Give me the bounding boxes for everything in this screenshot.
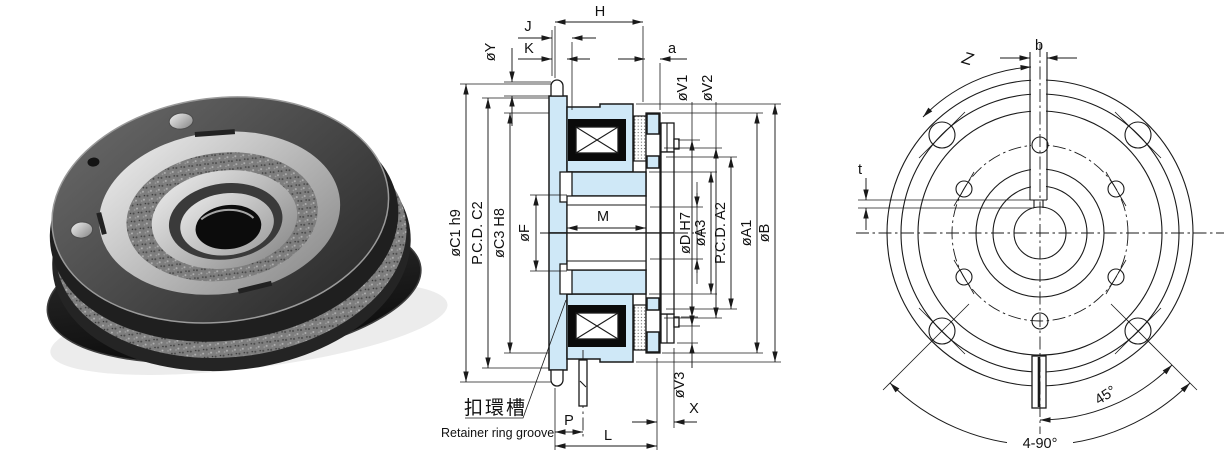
- callout-label-zh: 扣環槽: [464, 397, 527, 419]
- dim-label-V3: øV3: [672, 372, 688, 399]
- product-photo: [22, 73, 452, 393]
- dim-label-C1: øC1 h9: [448, 209, 464, 257]
- section-upper-half: [549, 80, 679, 233]
- dim-label-V2: øV2: [700, 75, 716, 102]
- dim-label-F: øF: [517, 224, 533, 242]
- dim-label-A1: øA1: [739, 220, 755, 247]
- dim-label-Z: Z: [959, 48, 976, 70]
- dim-label-4-90: 4-90°: [1023, 436, 1058, 452]
- mounting-flange: [549, 96, 567, 233]
- technical-drawing-page: H J K a øY øC1 h9: [0, 0, 1226, 459]
- callout-label-en: Retainer ring groove: [441, 426, 554, 440]
- dim-label-45: 45°: [1092, 383, 1119, 408]
- section-view: H J K a øY øC1 h9: [441, 4, 781, 450]
- grease-pin: [551, 80, 563, 96]
- armature-rim: [647, 156, 659, 168]
- friction-facing: [634, 116, 646, 161]
- dim-label-t: t: [858, 162, 862, 178]
- dim-label-C2: P.C.D. C2: [470, 201, 486, 264]
- section-bottom-dimensions: P L: [555, 358, 657, 450]
- dim-label-C3: øC3 H8: [492, 208, 508, 258]
- keyway-channel-mask: [1031, 52, 1046, 198]
- dim-label-H: H: [595, 4, 605, 20]
- front-view: b t Z 45° 4-90°: [856, 38, 1224, 452]
- dim-label-D: øD H7: [678, 212, 694, 254]
- dim-label-J: J: [524, 19, 531, 35]
- hub-sleeve: [661, 152, 674, 233]
- dim-label-Y: øY: [483, 42, 499, 61]
- dim-label-L: L: [604, 428, 612, 444]
- dim-label-V1: øV1: [675, 75, 691, 102]
- dim-label-B: øB: [757, 224, 773, 243]
- dim-label-P: P: [564, 413, 574, 429]
- dim-label-A2: P.C.D. A2: [713, 202, 729, 264]
- dim-label-M: M: [597, 209, 609, 225]
- armature-rim: [647, 114, 659, 134]
- snap-ring: [674, 139, 679, 149]
- dim-label-K: K: [524, 41, 534, 57]
- dim-label-X: X: [689, 401, 699, 417]
- dim-label-b: b: [1035, 38, 1043, 54]
- retainer-ring-groove-callout: 扣環槽 Retainer ring groove: [441, 300, 566, 440]
- rotor-web: [567, 172, 646, 196]
- lead-terminal: [579, 360, 587, 406]
- section-lower-half: [549, 233, 679, 386]
- drawing-canvas: H J K a øY øC1 h9: [0, 0, 1226, 459]
- dim-label-A3: øA3: [693, 220, 709, 247]
- dim-label-a: a: [668, 41, 677, 57]
